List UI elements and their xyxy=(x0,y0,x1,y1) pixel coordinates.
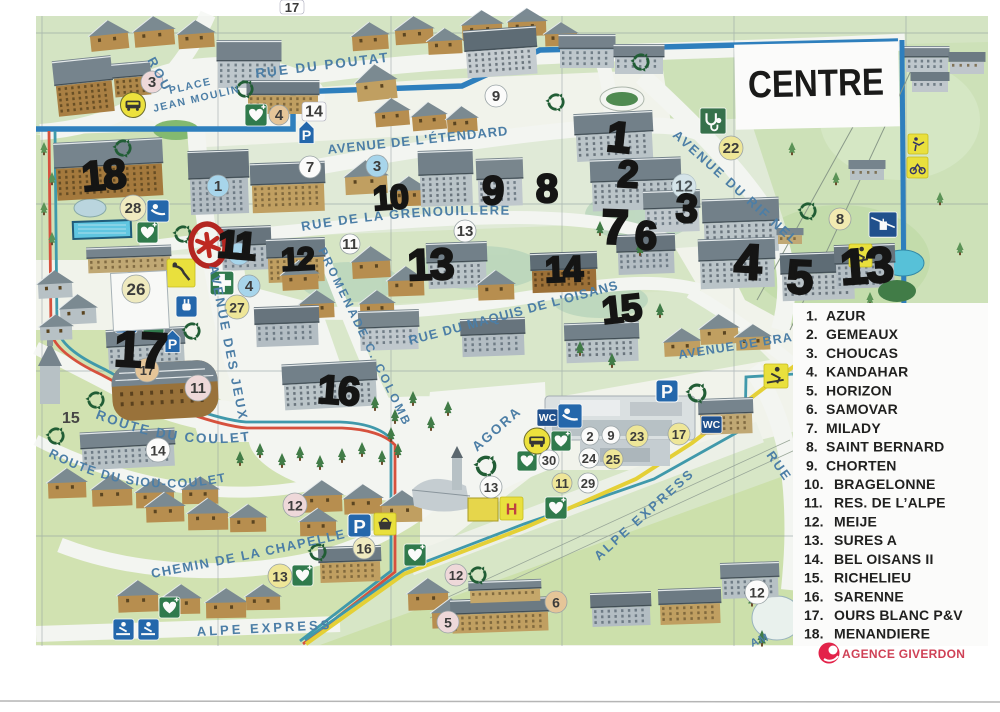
svg-text:AGENCE GIVERDON: AGENCE GIVERDON xyxy=(842,647,965,661)
svg-text:17: 17 xyxy=(285,0,299,15)
